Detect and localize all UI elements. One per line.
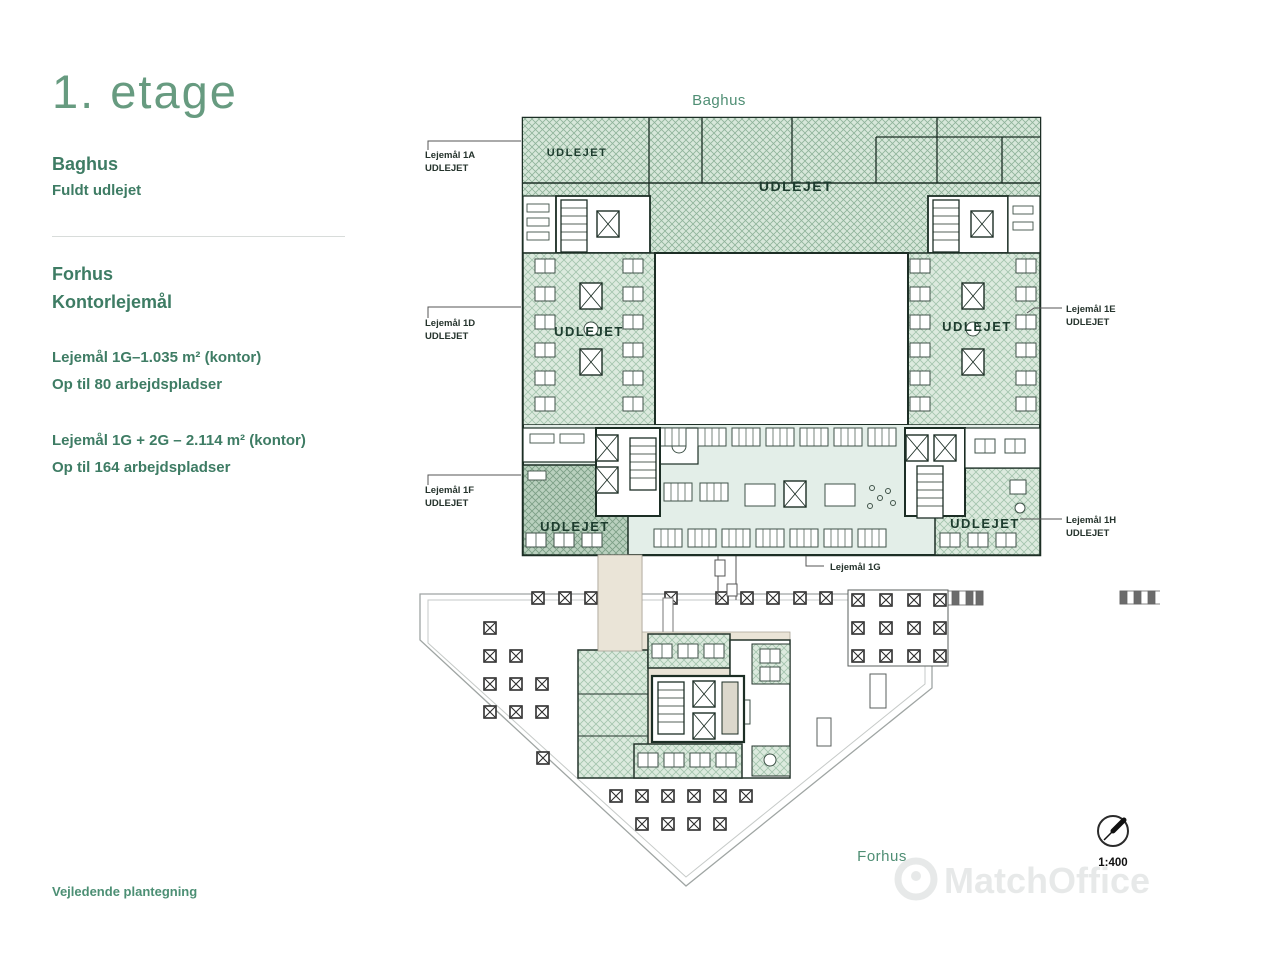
- unit-1g2g-size: Lejemål 1G + 2G – 2.114 m² (kontor): [52, 427, 306, 454]
- baghus-section: Baghus Fuldt udlejet: [52, 150, 141, 204]
- unit-1g-size: Lejemål 1G–1.035 m² (kontor): [52, 344, 261, 371]
- courtyard: [655, 253, 908, 425]
- callout-1f-status: UDLEJET: [425, 498, 468, 509]
- udlejet-1h-label: UDLEJET: [950, 516, 1020, 531]
- udlejet-top-center-label: UDLEJET: [759, 178, 833, 194]
- forhus-heading: Forhus: [52, 260, 172, 288]
- floorplan-svg: UDLEJET UDLEJET UDLEJET: [400, 80, 1160, 910]
- forhus-section: Forhus Kontorlejemål: [52, 260, 172, 316]
- unit-1g-info: Lejemål 1G–1.035 m² (kontor) Op til 80 a…: [52, 344, 261, 398]
- callout-1a-status: UDLEJET: [425, 163, 468, 174]
- callout-1h-name: Lejemål 1H: [1066, 515, 1116, 526]
- callout-1f-name: Lejemål 1F: [425, 485, 474, 496]
- callout-1h-status: UDLEJET: [1066, 528, 1109, 539]
- callout-1d-status: UDLEJET: [425, 331, 468, 342]
- udlejet-top-left-label: UDLEJET: [547, 147, 608, 159]
- page-title: 1. etage: [52, 64, 238, 119]
- section-divider: [52, 236, 345, 237]
- forhus-area-label: Forhus: [857, 848, 907, 865]
- udlejet-right-wing-label: UDLEJET: [942, 319, 1012, 334]
- callout-1e-name: Lejemål 1E: [1066, 304, 1116, 315]
- forhus-subtitle: Kontorlejemål: [52, 288, 172, 316]
- top-band: UDLEJET UDLEJET: [523, 118, 1040, 253]
- floorplan-page: 1. etage Baghus Fuldt udlejet Forhus Kon…: [0, 0, 1280, 960]
- baghus-status: Fuldt udlejet: [52, 178, 141, 204]
- udlejet-1f-label: UDLEJET: [540, 519, 610, 534]
- callout-1a-name: Lejemål 1A: [425, 150, 475, 161]
- callout-1d-name: Lejemål 1D: [425, 318, 475, 329]
- right-wing: UDLEJET: [908, 253, 1040, 425]
- unit-1g2g-workplaces: Op til 164 arbejdspladser: [52, 454, 306, 481]
- scale-label: 1:400: [1098, 857, 1127, 869]
- left-wing: UDLEJET: [523, 253, 655, 425]
- unit-1g2g-info: Lejemål 1G + 2G – 2.114 m² (kontor) Op t…: [52, 427, 306, 481]
- corridor: [598, 555, 642, 651]
- udlejet-left-wing-label: UDLEJET: [554, 324, 624, 339]
- baghus-heading: Baghus: [52, 150, 141, 178]
- north-arrow-icon: [1098, 816, 1128, 846]
- left-core: [596, 428, 660, 516]
- callout-1e-status: UDLEJET: [1066, 317, 1109, 328]
- callout-1g-name: Lejemål 1G: [830, 562, 881, 573]
- unit-1g-workplaces: Op til 80 arbejdspladser: [52, 371, 261, 398]
- crossing-stripes: [938, 591, 1160, 605]
- baghus-area-label: Baghus: [692, 92, 746, 109]
- baghus-building: UDLEJET UDLEJET UDLEJET: [523, 118, 1040, 555]
- disclaimer-note: Vejledende plantegning: [52, 884, 197, 899]
